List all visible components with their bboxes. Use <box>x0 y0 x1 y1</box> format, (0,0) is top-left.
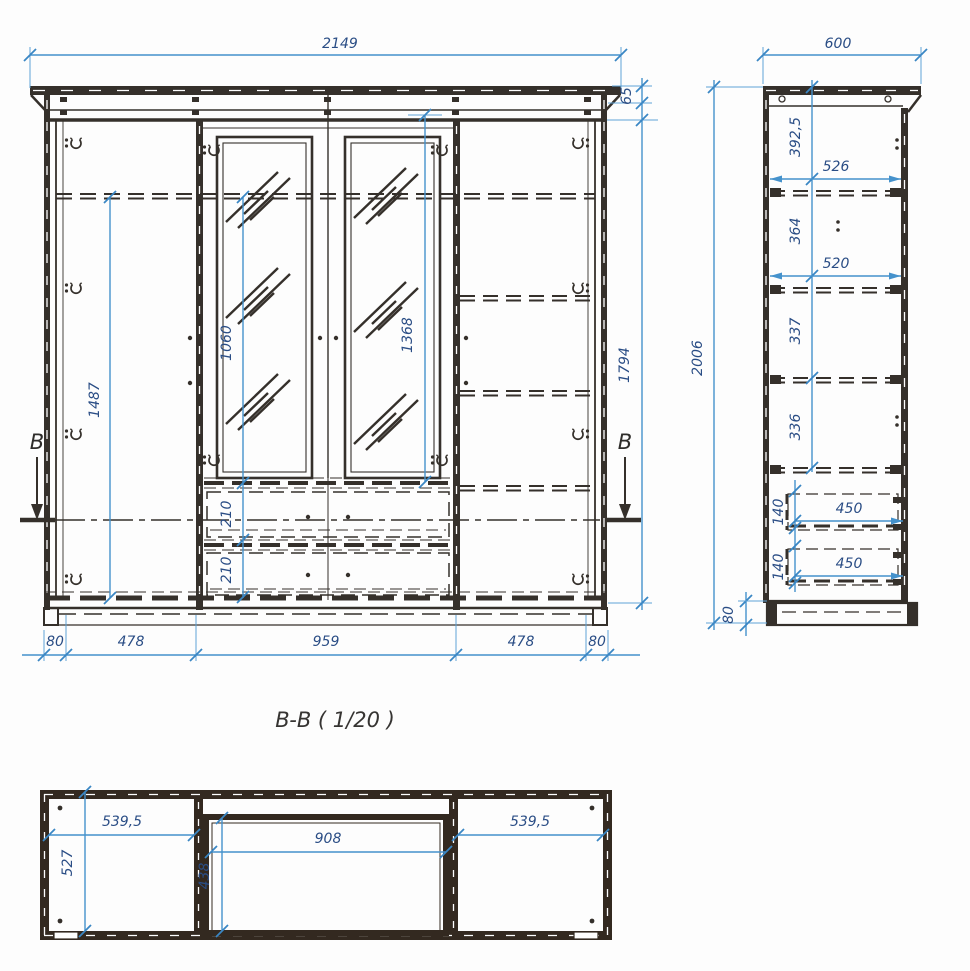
dim-bb-center-depth: 438 <box>197 863 213 890</box>
section-marker-b-left: B <box>30 430 44 454</box>
dim-side-seg2: 364 <box>788 218 804 245</box>
dim-front-center-height: 1368 <box>400 317 416 353</box>
side-view: 600 2006 392,5 364 337 336 526 520 <box>690 36 927 636</box>
side-dimensions: 600 2006 392,5 364 337 336 526 520 <box>690 36 927 636</box>
drawer-fronts <box>204 478 452 600</box>
dim-side-seg3: 337 <box>788 318 804 345</box>
dim-front-chain-478l: 478 <box>118 634 145 650</box>
technical-drawing-wardrobe: B B 2149 65 1794 1487 1060 210 <box>0 0 970 971</box>
dim-bb-center-width: 908 <box>315 831 342 847</box>
dim-side-seg4: 336 <box>788 414 804 441</box>
front-dimensions: 2149 65 1794 1487 1060 210 210 1368 <box>22 36 658 661</box>
dim-front-chain-80r: 80 <box>588 634 606 650</box>
dim-front-left-height: 1487 <box>87 382 103 418</box>
section-bb-view: B-B ( 1/20 ) 539,5 539,5 <box>40 708 612 940</box>
dim-front-cornice: 65 <box>619 87 635 105</box>
dim-front-drawer1: 210 <box>219 501 235 528</box>
dim-side-shelf-depth2: 520 <box>823 256 850 272</box>
dim-front-chain-478r: 478 <box>508 634 535 650</box>
section-dimensions: 539,5 539,5 908 527 438 <box>43 786 609 937</box>
dim-side-drawer-h2: 140 <box>771 554 787 581</box>
dim-front-total-width: 2149 <box>322 36 358 52</box>
dim-front-chain-80l: 80 <box>46 634 64 650</box>
dim-side-plinth: 80 <box>721 606 737 624</box>
dim-side-shelf-depth1: 526 <box>823 159 850 175</box>
section-title: B-B ( 1/20 ) <box>275 708 395 732</box>
dim-bb-left-width: 539,5 <box>102 814 142 830</box>
dim-side-depth: 600 <box>825 36 852 52</box>
dim-front-mirror-height: 1060 <box>219 325 235 361</box>
dim-side-drawer-d1: 450 <box>836 501 863 517</box>
drawing-canvas: B B 2149 65 1794 1487 1060 210 <box>0 0 970 971</box>
dim-side-drawer-d2: 450 <box>836 556 863 572</box>
cam-fitting-icons <box>60 97 591 115</box>
hidden-shelf-lines <box>56 194 595 491</box>
dim-front-drawer2: 210 <box>219 557 235 584</box>
dim-side-seg1: 392,5 <box>788 117 804 157</box>
front-view: B B 2149 65 1794 1487 1060 210 <box>20 36 658 661</box>
dim-bb-left-depth: 527 <box>60 850 76 877</box>
dim-bb-right-width: 539,5 <box>510 814 550 830</box>
dim-side-height: 2006 <box>690 340 706 376</box>
dim-front-chain-959: 959 <box>313 634 340 650</box>
dim-front-right-height: 1794 <box>617 347 633 383</box>
dim-side-drawer-h1: 140 <box>771 499 787 526</box>
section-marker-b-right: B <box>618 430 632 454</box>
